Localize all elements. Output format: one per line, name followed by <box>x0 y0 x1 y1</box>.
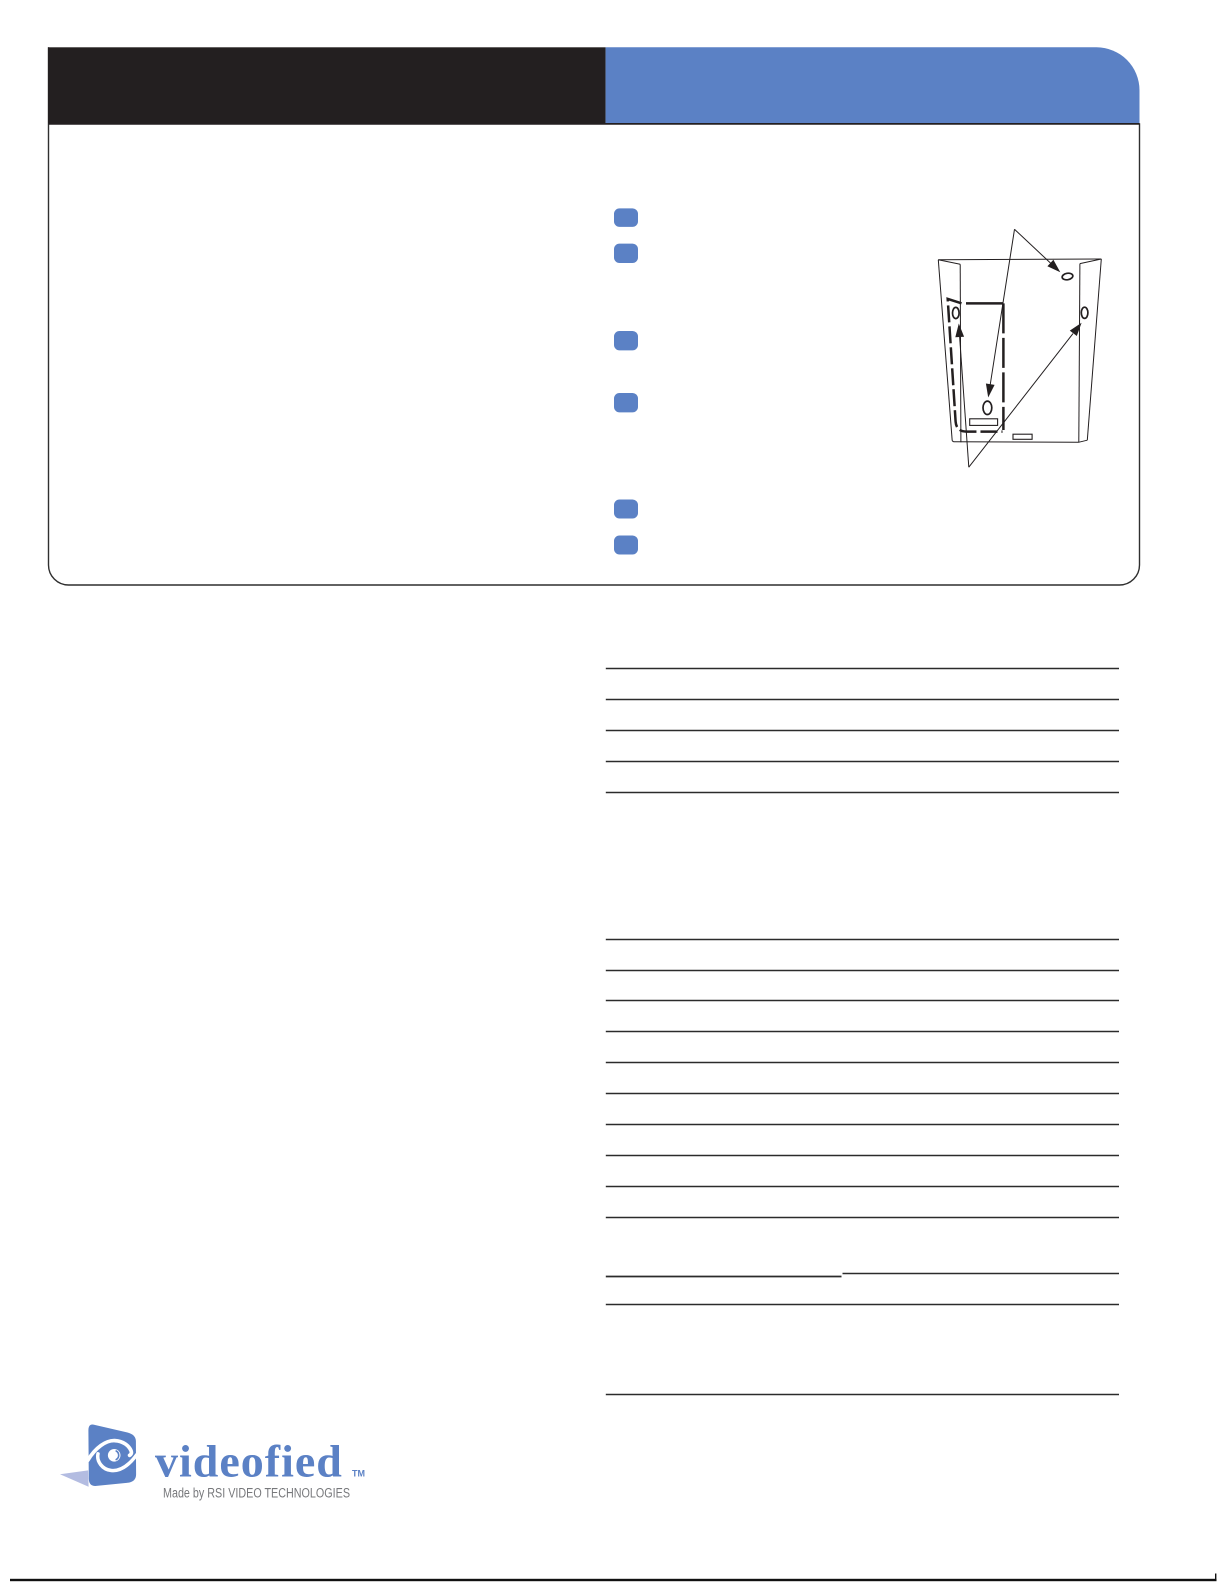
svg-text:Made by RSI VIDEO TECHNOLOGIES: Made by RSI VIDEO TECHNOLOGIES <box>163 1486 350 1501</box>
svg-text:TM: TM <box>352 1469 365 1479</box>
svg-text:videofied: videofied <box>155 1436 343 1487</box>
